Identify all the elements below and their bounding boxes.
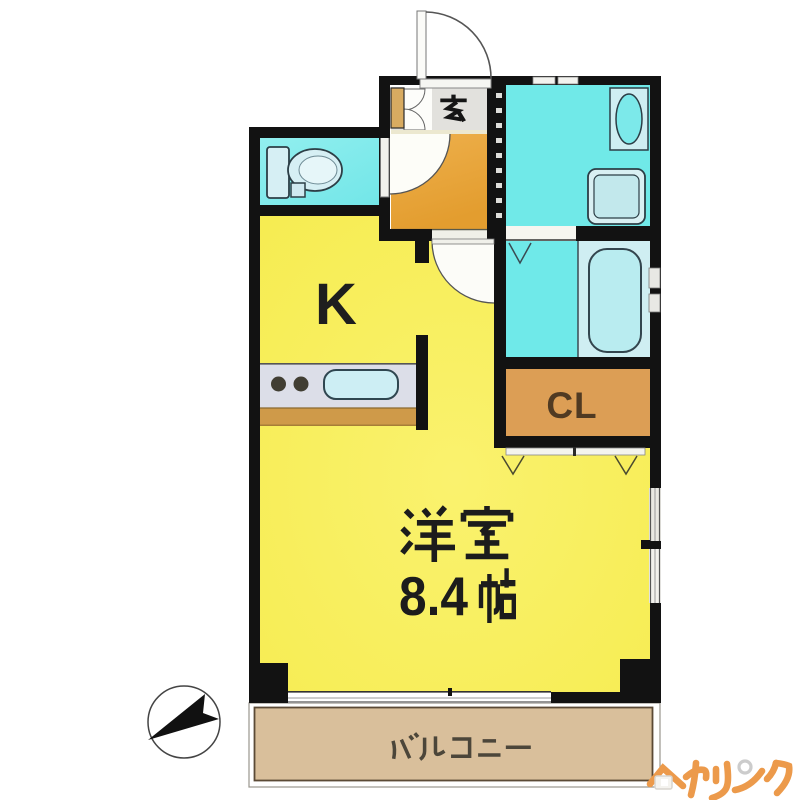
svg-text:8.4: 8.4 bbox=[399, 565, 468, 627]
svg-text:K: K bbox=[315, 272, 357, 337]
svg-text:CL: CL bbox=[546, 385, 597, 426]
